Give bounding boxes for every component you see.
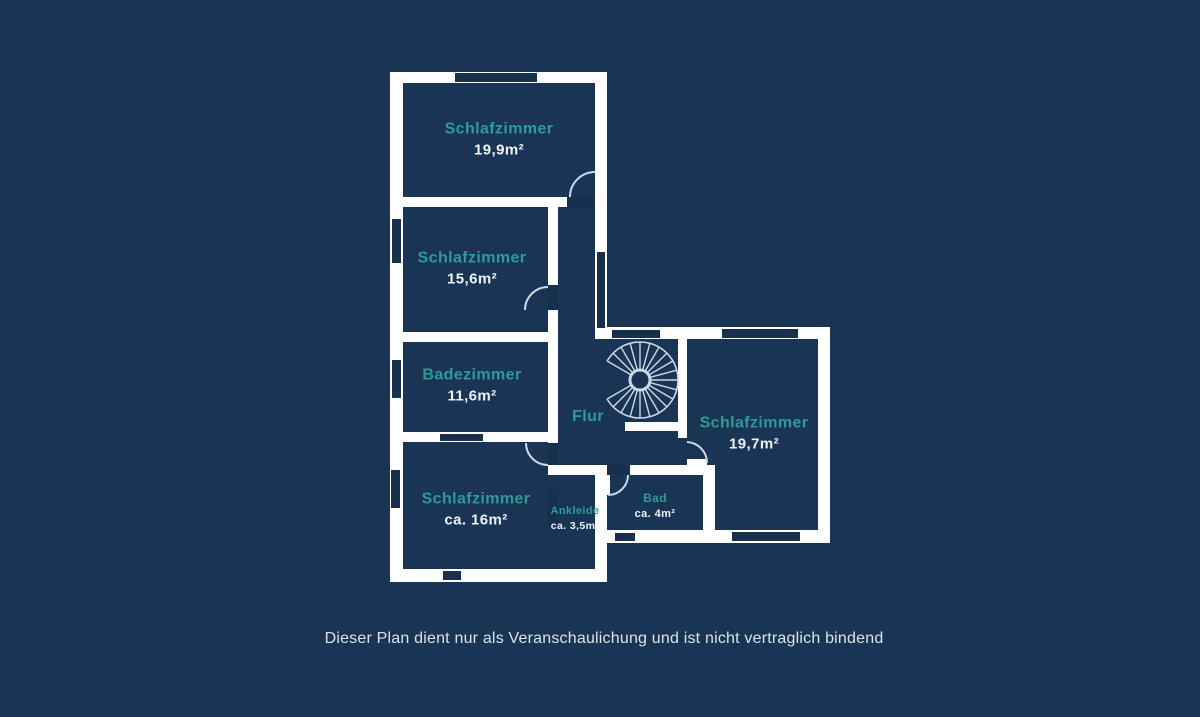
room-area: ca. 4m² [635, 507, 676, 522]
room-label-schlafzimmer-nw: Schlafzimmer19,9m² [445, 119, 554, 162]
stair-tread-line [643, 343, 650, 370]
stair-tread-line [613, 353, 633, 373]
wall-corridor-west [548, 197, 558, 475]
window-top-flur [612, 330, 660, 338]
door-gap-sw [548, 443, 558, 465]
window-bottom-sw [443, 571, 461, 580]
opening-bade [440, 434, 483, 441]
window-left-sw [391, 470, 400, 508]
disclaimer-text: Dieser Plan dient nur als Veranschaulich… [325, 630, 884, 648]
door-arc-schlafzimmer-w [525, 287, 548, 310]
window-left-w [392, 219, 401, 263]
wall-bad-east [703, 467, 715, 530]
wall-outer-right-b [818, 327, 830, 543]
spiral-staircase [607, 342, 678, 418]
room-area: 11,6m² [422, 387, 521, 408]
window-bottom-bad [615, 533, 635, 541]
room-area: ca. 3,5m² [550, 519, 599, 533]
room-area: 19,7m² [700, 435, 809, 456]
room-name: Schlafzimmer [418, 248, 527, 270]
stair-tread-line [649, 385, 673, 399]
stair-center-pole [630, 370, 650, 390]
window-top-e [722, 329, 798, 338]
room-name: Flur [572, 406, 604, 428]
stair-tread-line [621, 347, 635, 371]
wall-w-bade [390, 332, 548, 342]
door-gap-nw [567, 197, 595, 207]
stair-outer-edge [607, 342, 678, 418]
window-left-bade [392, 360, 401, 398]
stair-tread-line [649, 361, 673, 375]
room-area: ca. 16m² [422, 511, 531, 532]
door-arc-schlafzimmer-nw [570, 172, 595, 197]
door-arc-bad [608, 475, 628, 495]
room-area: 19,9m² [445, 141, 554, 162]
room-name: Ankleide [550, 504, 599, 519]
room-label-flur: Flur [572, 406, 604, 428]
stair-tread-line [630, 390, 637, 417]
stair-tread-line [613, 387, 633, 407]
room-label-ankleide: Ankleideca. 3,5m² [550, 504, 599, 534]
door-arc-schlafzimmer-sw [526, 443, 548, 465]
stair-tread-line [647, 387, 667, 407]
stair-tread-line [630, 343, 637, 370]
window-top-nw [455, 73, 537, 82]
stair-tread-line [645, 389, 659, 413]
room-name: Badezimmer [422, 365, 521, 387]
stair-tread-line [645, 347, 659, 371]
stair-tread-line [607, 385, 631, 399]
room-label-schlafzimmer-sw: Schlafzimmerca. 16m² [422, 489, 531, 532]
stair-tread-line [607, 361, 631, 375]
room-name: Schlafzimmer [422, 489, 531, 511]
stair-tread-line [650, 370, 677, 377]
room-name: Schlafzimmer [445, 119, 554, 141]
stair-tread-line [650, 383, 677, 390]
stair-landing [625, 422, 685, 431]
window-corridor-east [597, 252, 605, 328]
wall-outer-bottom-a [390, 569, 607, 582]
stair-tread-line [621, 389, 635, 413]
room-name: Schlafzimmer [700, 413, 809, 435]
room-label-bad: Badca. 4m² [635, 490, 676, 522]
floor-plan-page: Schlafzimmer19,9m²Schlafzimmer15,6m²Bade… [0, 0, 1200, 717]
room-name: Bad [635, 490, 676, 507]
stair-tread-line [647, 353, 667, 373]
door-leaf-schlafzimmer-e [687, 459, 707, 467]
window-bottom-e [732, 532, 800, 541]
door-gap-bad [607, 465, 630, 475]
room-area: 15,6m² [418, 270, 527, 291]
door-leaf-bad [605, 475, 610, 495]
room-label-badezimmer: Badezimmer11,6m² [422, 365, 521, 408]
room-label-schlafzimmer-e: Schlafzimmer19,7m² [700, 413, 809, 456]
door-gap-w [548, 285, 558, 310]
stair-tread-line [643, 390, 650, 417]
room-label-schlafzimmer-w: Schlafzimmer15,6m² [418, 248, 527, 291]
